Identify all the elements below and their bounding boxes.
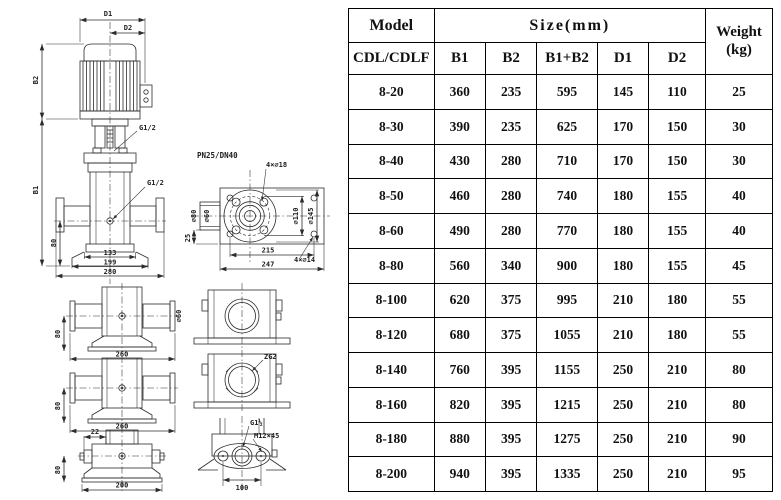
table-row: 8-30 390 235 625 170 150 30: [349, 109, 773, 144]
table-row: 8-180 880 395 1275 250 210 90: [349, 422, 773, 457]
thread-label-g12-top: G1/2: [139, 124, 156, 132]
b1b2-cell: 1055: [537, 318, 598, 353]
b1-cell: 390: [434, 109, 485, 144]
b1b2-cell: 1275: [537, 422, 598, 457]
port-side-view-2: ZG2: [194, 350, 290, 412]
weight-cell: 25: [705, 75, 772, 110]
dim-label-d2: D2: [124, 24, 132, 32]
d2-cell: 180: [649, 318, 706, 353]
model-cell: 8-20: [349, 75, 435, 110]
table-header-row-1: Model Size(mm) Weight (kg): [349, 9, 773, 43]
dim-label-80-v3: 80: [54, 466, 62, 474]
d1-cell: 180: [597, 179, 648, 214]
dim-label-199: 199: [104, 259, 117, 267]
b2-cell: 395: [485, 353, 536, 388]
b2-cell: 395: [485, 457, 536, 492]
model-cell: 8-60: [349, 214, 435, 249]
weight-cell: 30: [705, 144, 772, 179]
dim-label-phi80: ⌀80: [190, 210, 198, 223]
b1-cell: 940: [434, 457, 485, 492]
base-front-view-3: 22 80 200: [54, 426, 168, 492]
b2-cell: 280: [485, 214, 536, 249]
dim-label-80-v1: 80: [54, 330, 62, 338]
weight-cell: 80: [705, 353, 772, 388]
d1-cell: 210: [597, 283, 648, 318]
model-header: Model: [349, 9, 435, 43]
d2-cell: 155: [649, 179, 706, 214]
terminal-box: [140, 85, 152, 107]
model-cell: 8-180: [349, 422, 435, 457]
d2-cell: 210: [649, 422, 706, 457]
b1-cell: 820: [434, 387, 485, 422]
dim-label-100: 100: [236, 484, 249, 492]
model-cell: 8-100: [349, 283, 435, 318]
b2-cell: 280: [485, 144, 536, 179]
d1-cell: 250: [597, 457, 648, 492]
b2-cell: 280: [485, 179, 536, 214]
col-header-b2: B2: [485, 43, 536, 75]
size-group-header: Size(mm): [434, 9, 705, 43]
table-row: 8-120 680 375 1055 210 180 55: [349, 318, 773, 353]
b1b2-cell: 1215: [537, 387, 598, 422]
port-side-view-3: G1½ M12×45 100: [198, 416, 286, 492]
d2-cell: 210: [649, 457, 706, 492]
bolt-label-m12: M12×45: [254, 432, 279, 440]
weight-header: Weight (kg): [705, 9, 772, 75]
weight-cell: 55: [705, 318, 772, 353]
b2-cell: 235: [485, 75, 536, 110]
dim-label-b1: B1: [32, 186, 40, 194]
model-cell: 8-50: [349, 179, 435, 214]
weight-header-line2: (kg): [706, 42, 772, 59]
d1-cell: 210: [597, 318, 648, 353]
weight-cell: 45: [705, 248, 772, 283]
b1b2-cell: 740: [537, 179, 598, 214]
model-cell: 8-30: [349, 109, 435, 144]
pump-front-view: D1 D2 B2 B1 80 G1/2 G1/2 133 199 280: [32, 10, 166, 284]
dim-label-200: 200: [116, 482, 129, 490]
table-row: 8-140 760 395 1155 250 210 80: [349, 353, 773, 388]
b1-cell: 430: [434, 144, 485, 179]
dim-label-base-holes: 4×⌀14: [294, 256, 315, 264]
d2-cell: 210: [649, 387, 706, 422]
dim-label-80: 80: [50, 239, 58, 247]
d1-cell: 180: [597, 248, 648, 283]
dim-label-133: 133: [104, 249, 117, 257]
d2-cell: 155: [649, 248, 706, 283]
model-cell: 8-160: [349, 387, 435, 422]
dim-label-phi145: ⌀145: [307, 208, 315, 225]
dim-label-25: 25: [184, 234, 192, 242]
b1b2-cell: 595: [537, 75, 598, 110]
weight-cell: 95: [705, 457, 772, 492]
dim-label-247: 247: [262, 261, 275, 269]
dim-label-80-v2: 80: [54, 402, 62, 410]
dim-label-b2: B2: [32, 76, 40, 84]
model-cell: 8-40: [349, 144, 435, 179]
d1-cell: 170: [597, 109, 648, 144]
b1-cell: 360: [434, 75, 485, 110]
b1-cell: 620: [434, 283, 485, 318]
model-cell: 8-120: [349, 318, 435, 353]
weight-header-line1: Weight: [706, 24, 772, 41]
table-row: 8-20 360 235 595 145 110 25: [349, 75, 773, 110]
b1b2-cell: 770: [537, 214, 598, 249]
weight-cell: 80: [705, 387, 772, 422]
d2-cell: 150: [649, 144, 706, 179]
table-row: 8-100 620 375 995 210 180 55: [349, 283, 773, 318]
weight-cell: 40: [705, 214, 772, 249]
dim-label-280: 280: [104, 268, 117, 276]
table-row: 8-200 940 395 1335 250 210 95: [349, 457, 773, 492]
table-row: 8-160 820 395 1215 250 210 80: [349, 387, 773, 422]
dim-label-bolt-holes: 4×⌀18: [266, 161, 287, 169]
b2-cell: 395: [485, 387, 536, 422]
b2-cell: 235: [485, 109, 536, 144]
dim-label-215: 215: [262, 247, 275, 255]
pump-technical-drawing: D1 D2 B2 B1 80 G1/2 G1/2 133 199 280: [0, 0, 348, 500]
b1b2-cell: 1335: [537, 457, 598, 492]
base-front-view-1: 80 260 ⌀60: [54, 283, 183, 361]
b1-cell: 460: [434, 179, 485, 214]
d1-cell: 250: [597, 422, 648, 457]
b1b2-cell: 900: [537, 248, 598, 283]
d1-cell: 250: [597, 387, 648, 422]
b2-cell: 375: [485, 318, 536, 353]
b1b2-cell: 625: [537, 109, 598, 144]
col-header-d1: D1: [597, 43, 648, 75]
thread-label-g114: G1½: [250, 419, 263, 427]
d2-cell: 210: [649, 353, 706, 388]
table-row: 8-60 490 280 770 180 155 40: [349, 214, 773, 249]
col-header-b1: B1: [434, 43, 485, 75]
b1b2-cell: 1155: [537, 353, 598, 388]
dim-label-phi110: ⌀110: [292, 208, 300, 225]
col-header-b1b2: B1+B2: [537, 43, 598, 75]
table-row: 8-40 430 280 710 170 150 30: [349, 144, 773, 179]
dim-label-22: 22: [91, 428, 99, 436]
b1-cell: 490: [434, 214, 485, 249]
table-row: 8-50 460 280 740 180 155 40: [349, 179, 773, 214]
weight-cell: 90: [705, 422, 772, 457]
b1-cell: 680: [434, 318, 485, 353]
base-front-view-2: 80 260: [54, 356, 178, 433]
b2-cell: 395: [485, 422, 536, 457]
weight-cell: 30: [705, 109, 772, 144]
model-cell: 8-80: [349, 248, 435, 283]
table-row: 8-80 560 340 900 180 155 45: [349, 248, 773, 283]
weight-cell: 40: [705, 179, 772, 214]
d2-cell: 155: [649, 214, 706, 249]
b1b2-cell: 710: [537, 144, 598, 179]
model-subheader: CDL/CDLF: [349, 43, 435, 75]
thread-label-g12-mid: G1/2: [147, 179, 164, 187]
b1-cell: 760: [434, 353, 485, 388]
flange-top-view: ⌀80 ⌀60 PN25/DN40 4×⌀18 ⌀110 ⌀145 25 215…: [184, 151, 330, 271]
weight-cell: 55: [705, 283, 772, 318]
thread-label-zg2: ZG2: [264, 353, 277, 361]
d1-cell: 250: [597, 353, 648, 388]
d1-cell: 180: [597, 214, 648, 249]
size-table-body: 8-20 360 235 595 145 110 25 8-30 390 235…: [349, 75, 773, 492]
d2-cell: 110: [649, 75, 706, 110]
col-header-d2: D2: [649, 43, 706, 75]
flange-rating-label: PN25/DN40: [197, 151, 238, 160]
b2-cell: 375: [485, 283, 536, 318]
d2-cell: 150: [649, 109, 706, 144]
d1-cell: 145: [597, 75, 648, 110]
b1-cell: 560: [434, 248, 485, 283]
b1-cell: 880: [434, 422, 485, 457]
dim-label-d1: D1: [104, 10, 112, 18]
b2-cell: 340: [485, 248, 536, 283]
d2-cell: 180: [649, 283, 706, 318]
d1-cell: 170: [597, 144, 648, 179]
dim-label-phi60: ⌀60: [203, 210, 211, 223]
dimension-table: Model Size(mm) Weight (kg) CDL/CDLF B1 B…: [348, 8, 773, 492]
port-side-view-1: [194, 283, 290, 348]
b1b2-cell: 995: [537, 283, 598, 318]
model-cell: 8-140: [349, 353, 435, 388]
dim-label-phi60-v1: ⌀60: [175, 310, 183, 323]
dimension-table-panel: Model Size(mm) Weight (kg) CDL/CDLF B1 B…: [348, 8, 773, 492]
model-cell: 8-200: [349, 457, 435, 492]
